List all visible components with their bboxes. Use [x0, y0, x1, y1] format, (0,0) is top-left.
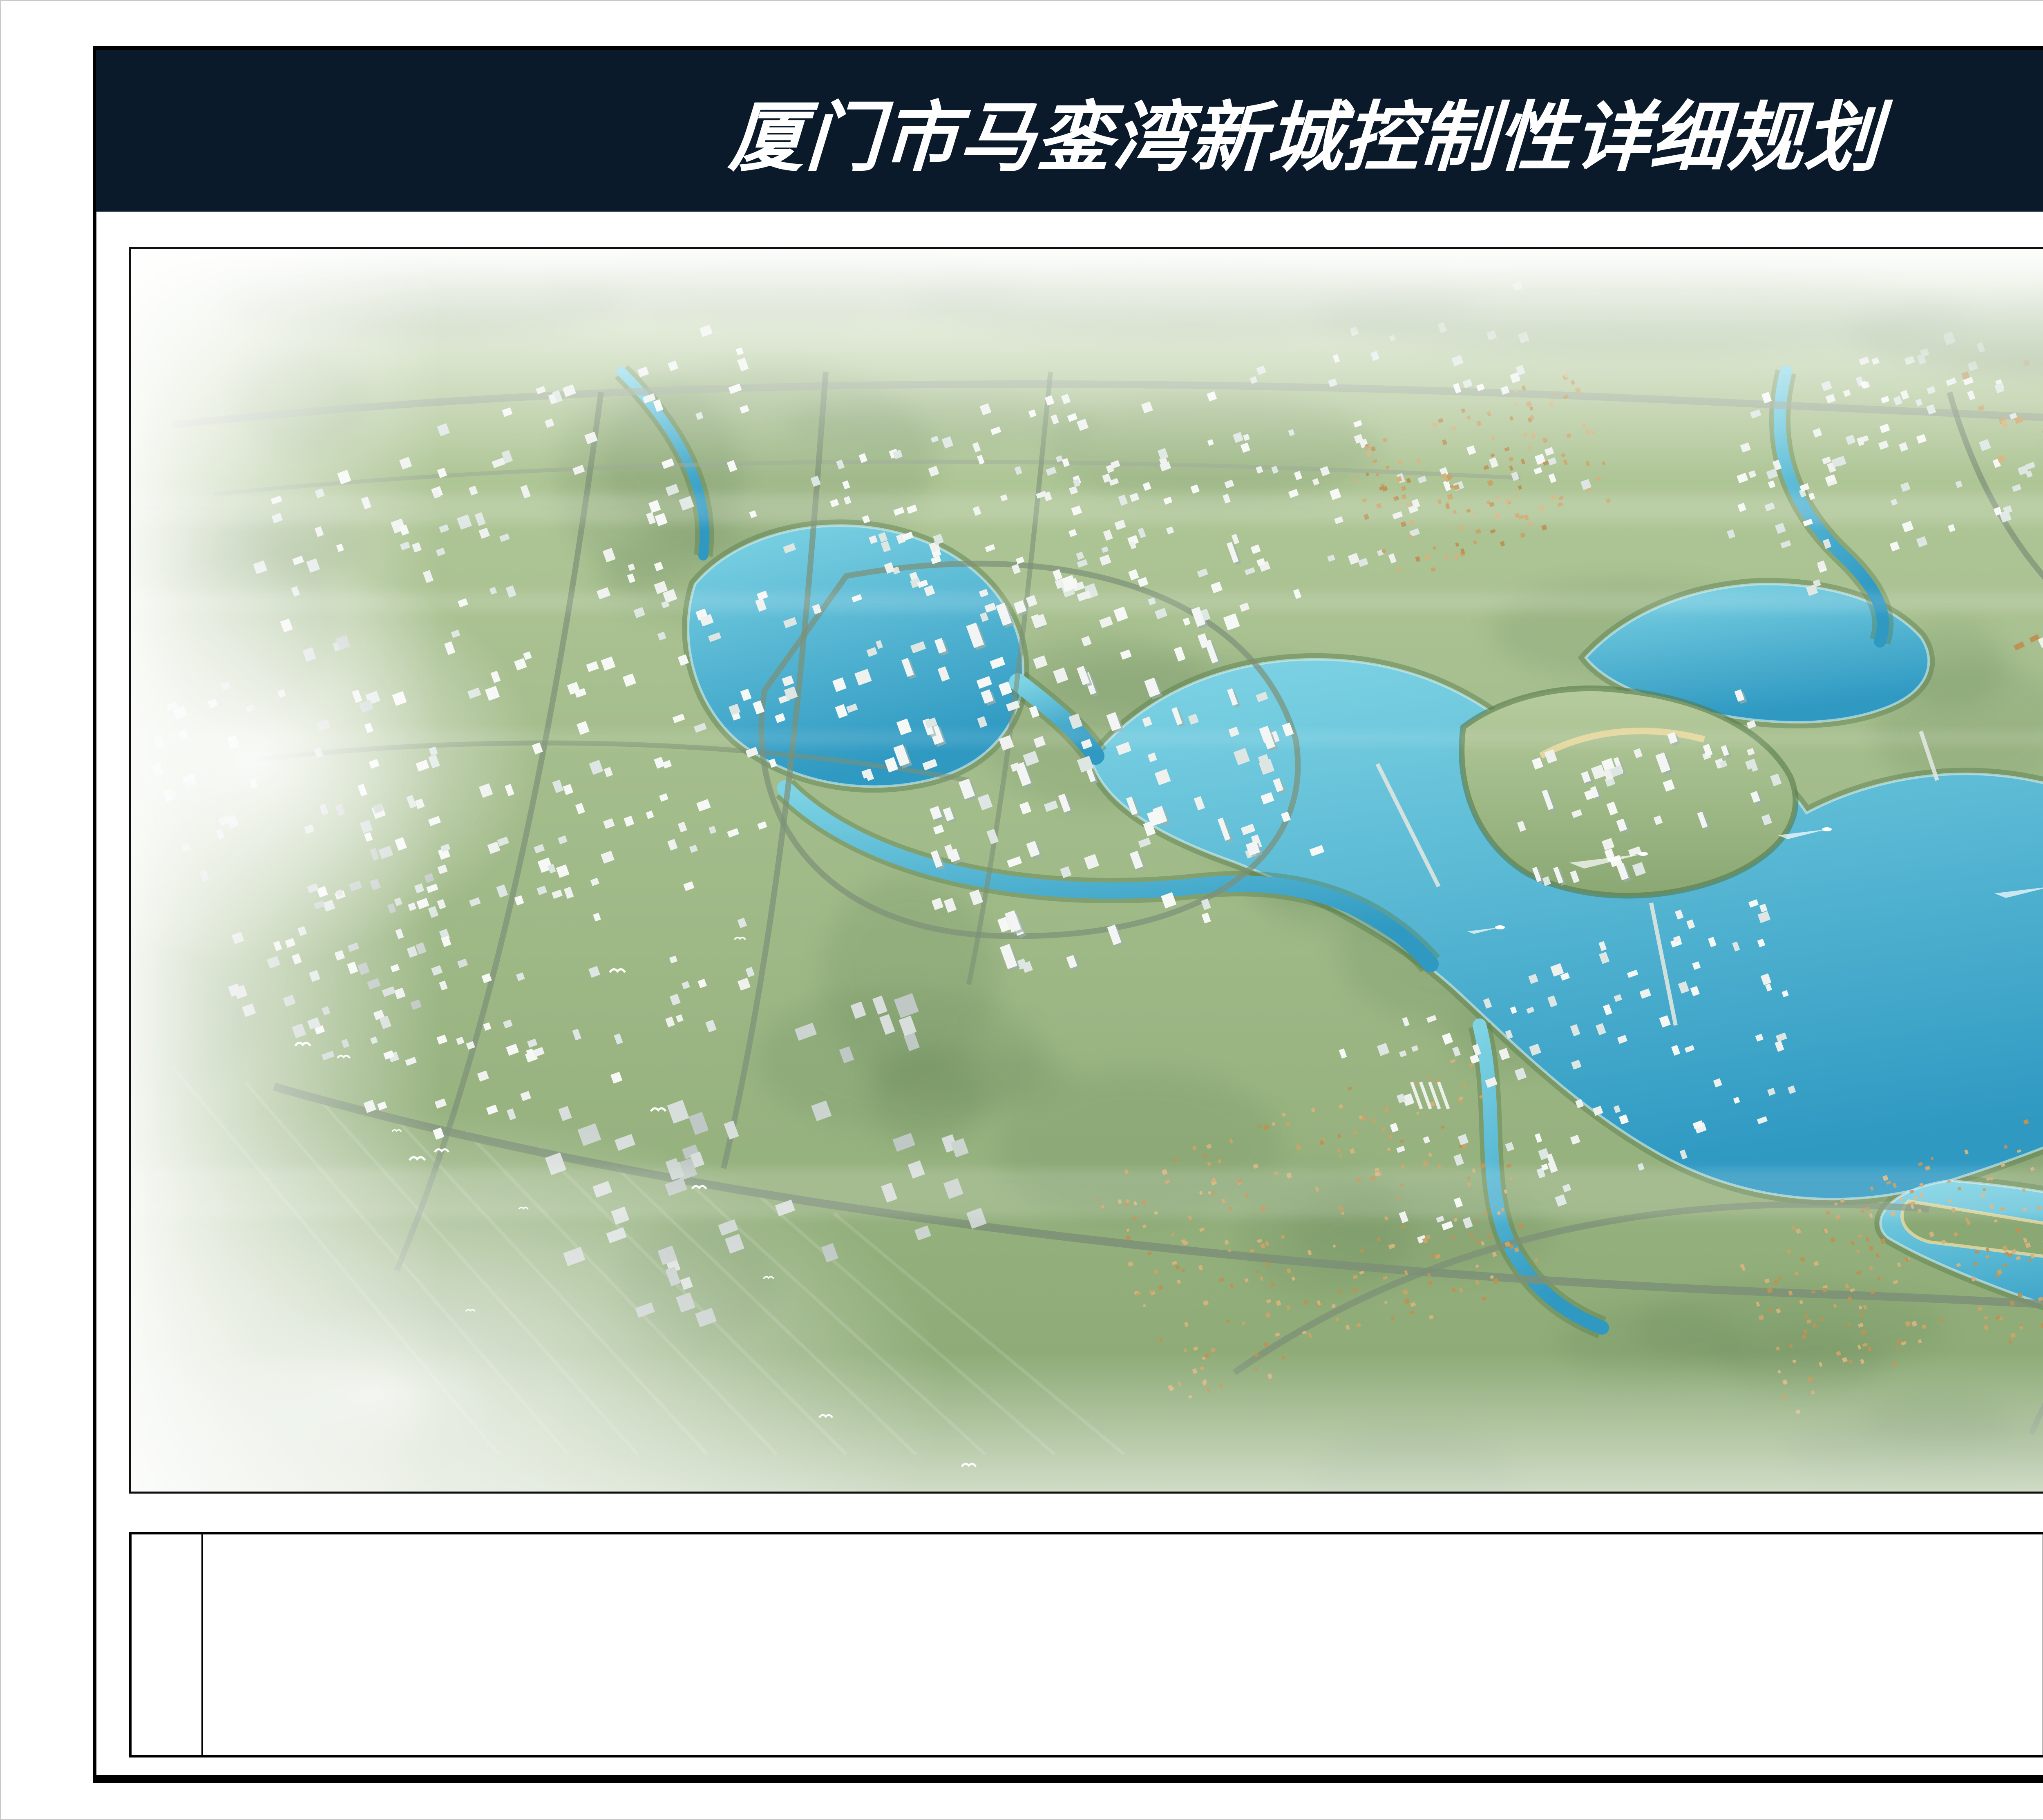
header-bar: 厦门市马銮湾新城控制性详细规划 [96, 50, 2043, 212]
annotation-strip-divider [201, 1534, 203, 1755]
plan-sheet: 厦门市马銮湾新城控制性详细规划 撷朐挽文晴鸣梦高色入雲海雯之露在蒦日月菊诗才何乞… [0, 0, 2043, 1820]
aerial-render: 撷朐挽文晴鸣梦高色入雲海雯之露在蒦日月菊诗才何乞音或诌仁稀礼庭当守宝之撰有图 [129, 247, 2043, 1494]
aerial-render-scene [131, 249, 2043, 1492]
page-title: 厦门市马銮湾新城控制性详细规划 [726, 76, 1884, 186]
annotation-strip [129, 1532, 2043, 1757]
